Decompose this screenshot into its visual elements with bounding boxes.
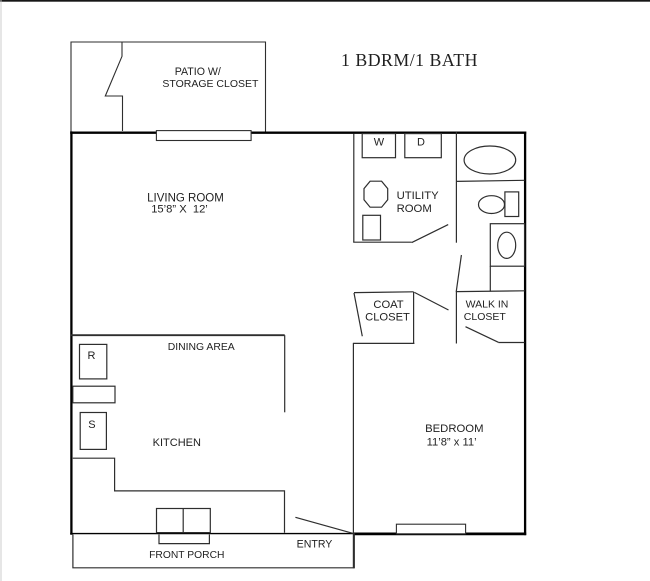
- svg-text:15’8” X 12’: 15’8” X 12’: [151, 204, 208, 216]
- svg-text:DINING AREA: DINING AREA: [168, 342, 235, 353]
- svg-text:CLOSET: CLOSET: [464, 311, 507, 323]
- svg-text:11’8” x 11’: 11’8” x 11’: [427, 436, 477, 448]
- svg-text:BEDROOM: BEDROOM: [425, 423, 483, 435]
- svg-text:FRONT PORCH: FRONT PORCH: [149, 550, 224, 561]
- svg-text:WALK IN: WALK IN: [466, 299, 509, 311]
- svg-text:1 BDRM/1 BATH: 1 BDRM/1 BATH: [341, 50, 478, 70]
- svg-text:D: D: [417, 137, 425, 149]
- svg-text:COAT: COAT: [373, 299, 403, 311]
- svg-text:R: R: [88, 350, 96, 362]
- svg-text:UTILITY: UTILITY: [397, 190, 440, 202]
- svg-text:S: S: [88, 419, 95, 431]
- svg-text:ENTRY: ENTRY: [297, 538, 333, 550]
- svg-text:ROOM: ROOM: [397, 203, 432, 215]
- svg-text:W: W: [374, 137, 385, 149]
- svg-text:PATIO W/: PATIO W/: [175, 66, 221, 78]
- svg-text:KITCHEN: KITCHEN: [153, 437, 201, 449]
- svg-text:CLOSET: CLOSET: [365, 312, 410, 324]
- svg-text:STORAGE CLOSET: STORAGE CLOSET: [162, 78, 259, 90]
